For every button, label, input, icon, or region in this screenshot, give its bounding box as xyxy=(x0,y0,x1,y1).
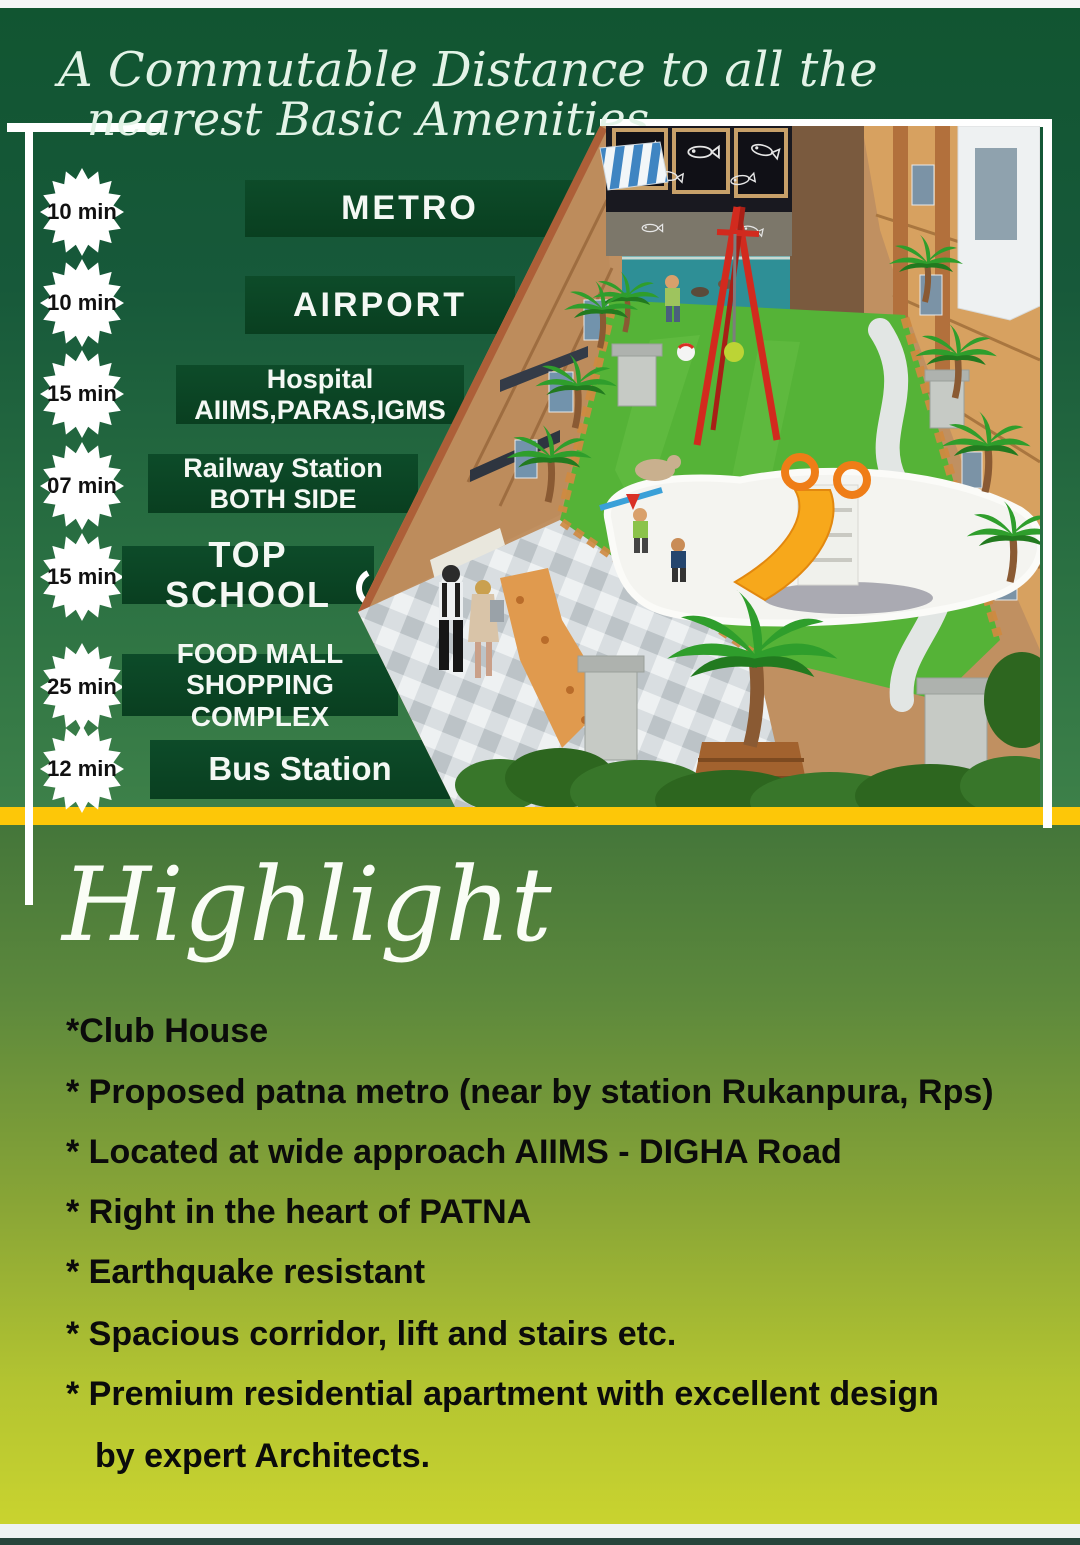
highlight-bullet: * Premium residential apartment with exc… xyxy=(66,1375,939,1414)
highlight-bullet: * Located at wide approach AIIMS - DIGHA… xyxy=(66,1133,842,1172)
top-white-strip xyxy=(0,0,1080,8)
time-badge: 10 min xyxy=(39,258,125,348)
football xyxy=(677,343,695,361)
time-badge: 12 min xyxy=(39,724,125,814)
highlight-heading: Highlight xyxy=(62,846,552,965)
brochure-page: A Commutable Distance to all the nearest… xyxy=(0,0,1080,1545)
time-badge: 15 min xyxy=(39,349,125,439)
back-corridor xyxy=(790,126,864,336)
highlight-bullet: * Spacious corridor, lift and stairs etc… xyxy=(66,1315,676,1354)
highlight-bullet: * Earthquake resistant xyxy=(66,1253,425,1292)
time-badge: 15 min xyxy=(39,532,125,622)
courtyard-render xyxy=(355,119,1043,825)
highlight-bullet: * Proposed patna metro (near by station … xyxy=(66,1073,994,1112)
footer-white-strip xyxy=(0,1524,1080,1538)
highlight-bullet: *Club House xyxy=(66,1012,268,1051)
time-badge: 25 min xyxy=(39,642,125,732)
highlight-bullet-continued: by expert Architects. xyxy=(95,1437,430,1476)
frame-line-right-vertical xyxy=(1043,119,1052,828)
time-badge: 07 min xyxy=(39,441,125,531)
time-badge: 10 min xyxy=(39,167,125,257)
amenity-bar-school: TOP SCHOOL xyxy=(122,546,374,604)
striped-awning xyxy=(600,142,668,190)
footer-teal-strip xyxy=(0,1538,1080,1545)
highlight-bullet: * Right in the heart of PATNA xyxy=(66,1193,531,1232)
page-title-line1: A Commutable Distance to all the xyxy=(58,42,718,98)
frame-line-left-vertical xyxy=(25,123,33,905)
